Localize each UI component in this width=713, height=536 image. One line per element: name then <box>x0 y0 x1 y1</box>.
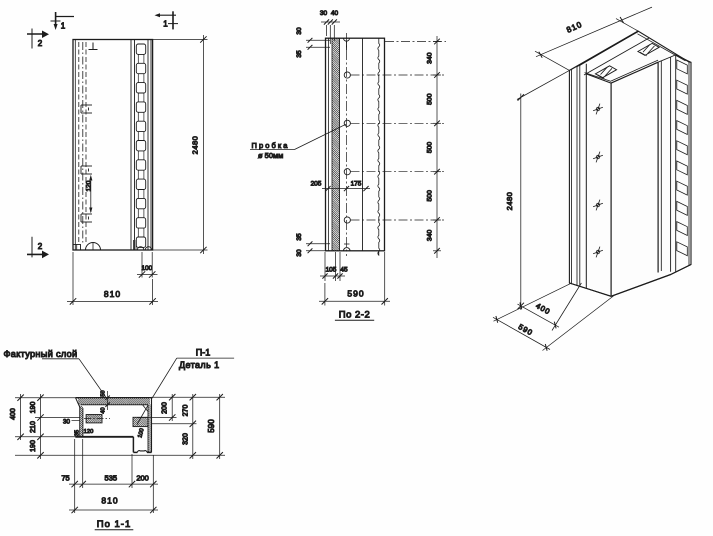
svg-text:500: 500 <box>427 190 434 202</box>
svg-text:Фактурный слой: Фактурный слой <box>4 349 78 359</box>
svg-text:2: 2 <box>38 242 43 251</box>
svg-text:810: 810 <box>101 496 118 506</box>
svg-text:200: 200 <box>136 474 149 483</box>
svg-text:35: 35 <box>75 430 81 436</box>
svg-text:2480: 2480 <box>505 192 514 211</box>
svg-text:40: 40 <box>331 10 339 17</box>
svg-text:105: 105 <box>326 267 337 274</box>
svg-text:1: 1 <box>61 22 66 31</box>
svg-text:45: 45 <box>340 267 348 274</box>
svg-text:340: 340 <box>427 52 434 64</box>
svg-text:175: 175 <box>351 181 362 188</box>
svg-text:320: 320 <box>182 433 189 445</box>
svg-text:810: 810 <box>104 289 121 299</box>
svg-text:270: 270 <box>182 405 189 417</box>
svg-text:120: 120 <box>84 429 94 435</box>
svg-text:По 2-2: По 2-2 <box>339 310 370 321</box>
svg-text:75: 75 <box>61 474 69 483</box>
svg-text:190: 190 <box>30 440 37 452</box>
svg-text:40: 40 <box>101 407 107 413</box>
svg-text:30: 30 <box>63 419 70 426</box>
svg-text:ø 50мм: ø 50мм <box>258 151 283 160</box>
svg-text:500: 500 <box>427 93 434 105</box>
svg-text:35: 35 <box>296 233 303 241</box>
svg-text:500: 500 <box>427 142 434 154</box>
svg-text:2: 2 <box>38 39 43 48</box>
svg-text:205: 205 <box>311 181 322 188</box>
svg-text:590: 590 <box>347 289 364 299</box>
svg-text:200: 200 <box>162 402 169 414</box>
svg-text:340: 340 <box>427 230 434 242</box>
svg-text:535: 535 <box>105 474 118 483</box>
svg-text:100: 100 <box>141 265 152 272</box>
svg-text:П-1: П-1 <box>196 348 210 358</box>
svg-text:30: 30 <box>296 27 303 35</box>
svg-text:30: 30 <box>320 10 328 17</box>
svg-text:2480: 2480 <box>191 136 200 155</box>
svg-text:30: 30 <box>296 249 303 257</box>
svg-text:190: 190 <box>30 402 37 414</box>
svg-text:П р о б к а: П р о б к а <box>252 141 289 150</box>
svg-text:590: 590 <box>207 419 216 433</box>
svg-text:210: 210 <box>30 421 37 433</box>
svg-text:400: 400 <box>10 408 17 420</box>
svg-text:35: 35 <box>296 50 303 58</box>
svg-text:Деталь 1: Деталь 1 <box>179 360 219 370</box>
svg-text:120: 120 <box>86 180 93 191</box>
svg-text:1: 1 <box>163 20 168 29</box>
svg-text:По 1-1: По 1-1 <box>97 519 131 530</box>
